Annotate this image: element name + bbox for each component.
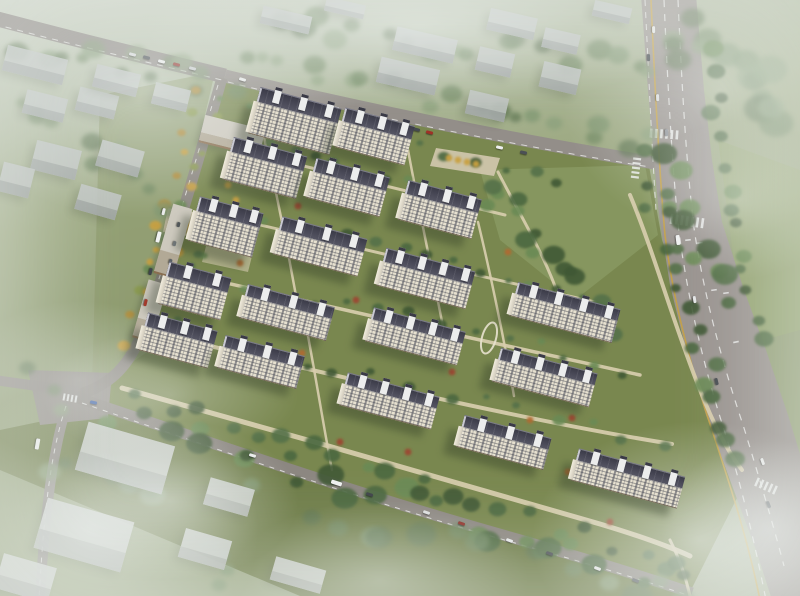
fog-patch bbox=[0, 380, 260, 596]
aerial-rendering-scene bbox=[0, 0, 800, 596]
fog-patch bbox=[660, 440, 800, 596]
fog-patch bbox=[560, 0, 800, 240]
fog-patch bbox=[230, 500, 530, 596]
fog-patch bbox=[640, 120, 800, 280]
fog-patch bbox=[140, 0, 700, 110]
fog-patch bbox=[40, 420, 300, 580]
